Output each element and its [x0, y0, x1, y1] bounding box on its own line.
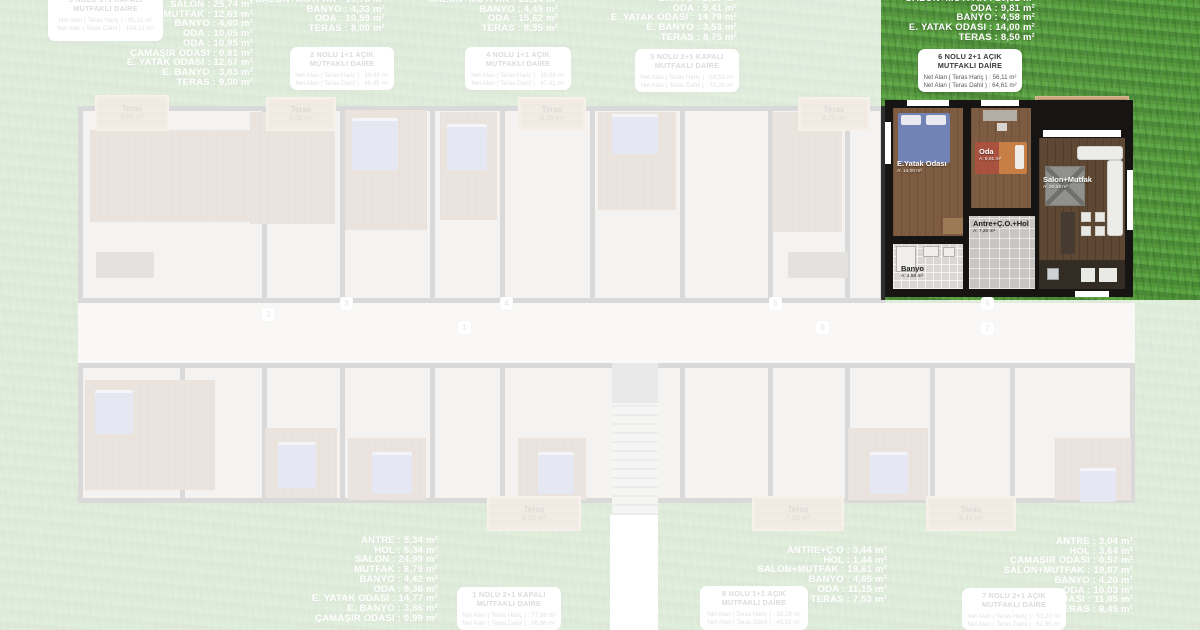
- room-label: TERAS: [959, 33, 1001, 43]
- sink: [923, 246, 939, 257]
- toilet: [943, 247, 955, 257]
- site-plan-image: Teras 9,00 m² Teras 8,00 m² Teras 8,35 m…: [0, 0, 1200, 630]
- chair: [997, 123, 1007, 131]
- chair: [1095, 212, 1105, 222]
- sofa: [1077, 146, 1123, 160]
- unit6-floor-plan: E.Yatak OdasıA: 14,00 m² OdaA: 9,81 m² S…: [885, 100, 1133, 297]
- window: [907, 100, 949, 106]
- unit6-info-box: 6 NOLU 2+1 AÇIK MUTFAKLI DAİRE Net Alan …: [918, 49, 1022, 92]
- counter: [1061, 212, 1075, 254]
- kitchen-appliance: [1099, 268, 1117, 282]
- wardrobe: [943, 218, 963, 234]
- area-row: TERAS8,50 m²: [959, 33, 1035, 43]
- room-area: 8,50 m²: [1001, 33, 1035, 43]
- kitchen-appliance: [1081, 268, 1095, 282]
- pillow: [926, 115, 946, 125]
- window: [981, 100, 1019, 106]
- chair: [1081, 212, 1091, 222]
- unit6-area-list: SALON+MUTFAK20,52 m² ODA9,81 m² BANYO4,5…: [735, 0, 1035, 43]
- sofa: [1107, 160, 1123, 236]
- label-salon: Salon+MutfakA: 20,52 m²: [1043, 176, 1092, 191]
- net-area: Net Alan ( Teras Hariç ) : 56,11 m²: [918, 74, 1022, 82]
- label-oda: OdaA: 9,81 m²: [979, 148, 1001, 163]
- chair: [1081, 226, 1091, 236]
- label-antre: Antre+Ç.O.+HolA: 7,20 m²: [973, 220, 1029, 235]
- desk: [983, 110, 1017, 121]
- pillow: [1015, 145, 1024, 169]
- window: [885, 122, 891, 164]
- net-area: Net Alan ( Teras Dahil ) : 64,61 m²: [918, 82, 1022, 90]
- label-eyatak: E.Yatak OdasıA: 14,00 m²: [897, 160, 947, 175]
- window: [1075, 291, 1109, 297]
- window: [1043, 130, 1121, 137]
- unit6-highlight: SALON+MUTFAK20,52 m² ODA9,81 m² BANYO4,5…: [0, 0, 1200, 630]
- unit-title: MUTFAKLI DAİRE: [918, 62, 1022, 71]
- pillow: [901, 115, 921, 125]
- kitchen-sink: [1047, 268, 1059, 280]
- chair: [1095, 226, 1105, 236]
- window: [1127, 170, 1133, 230]
- label-banyo: BanyoA: 4,58 m²: [901, 265, 924, 280]
